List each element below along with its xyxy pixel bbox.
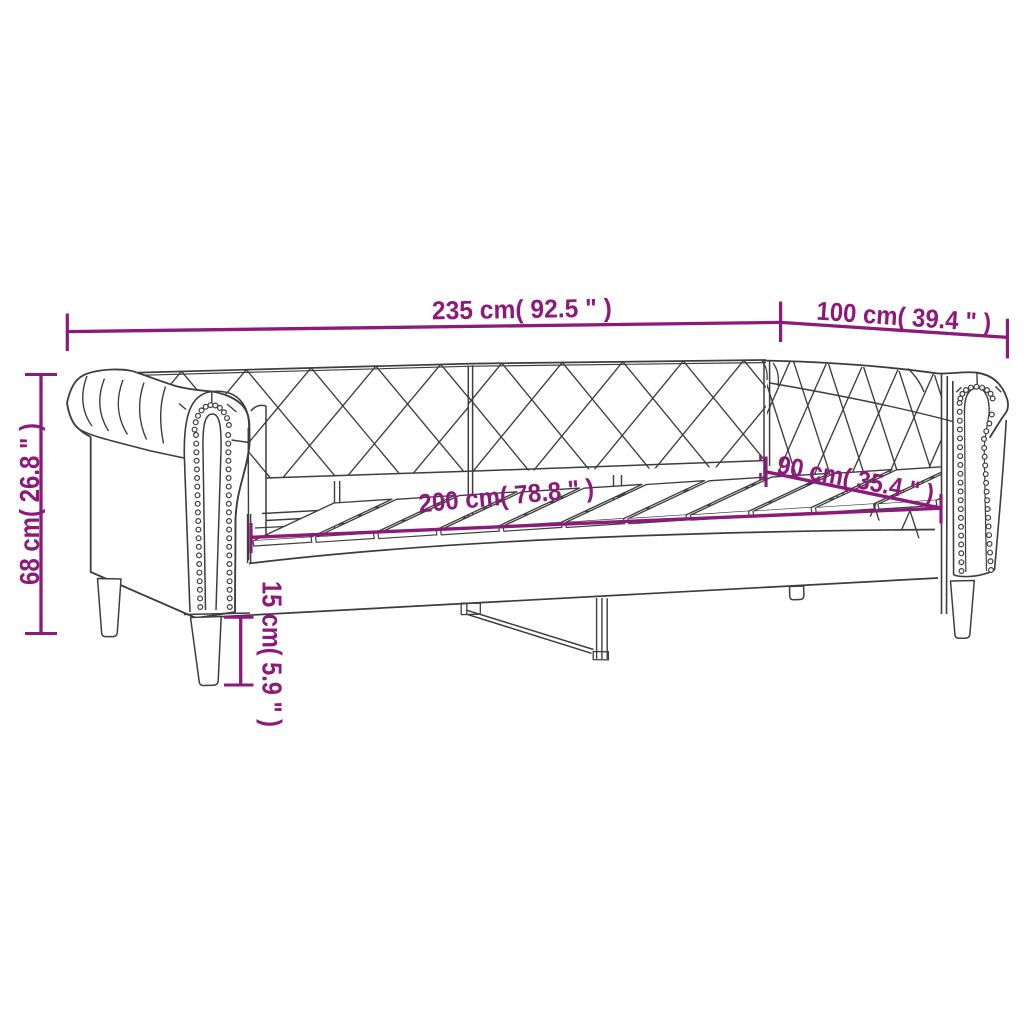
svg-text:235 cm( 92.5 " ): 235 cm( 92.5 " ) — [432, 293, 612, 326]
svg-text:15 cm( 5.9 " ): 15 cm( 5.9 " ) — [257, 581, 288, 727]
svg-text:68 cm( 26.8 " ): 68 cm( 26.8 " ) — [14, 423, 45, 585]
